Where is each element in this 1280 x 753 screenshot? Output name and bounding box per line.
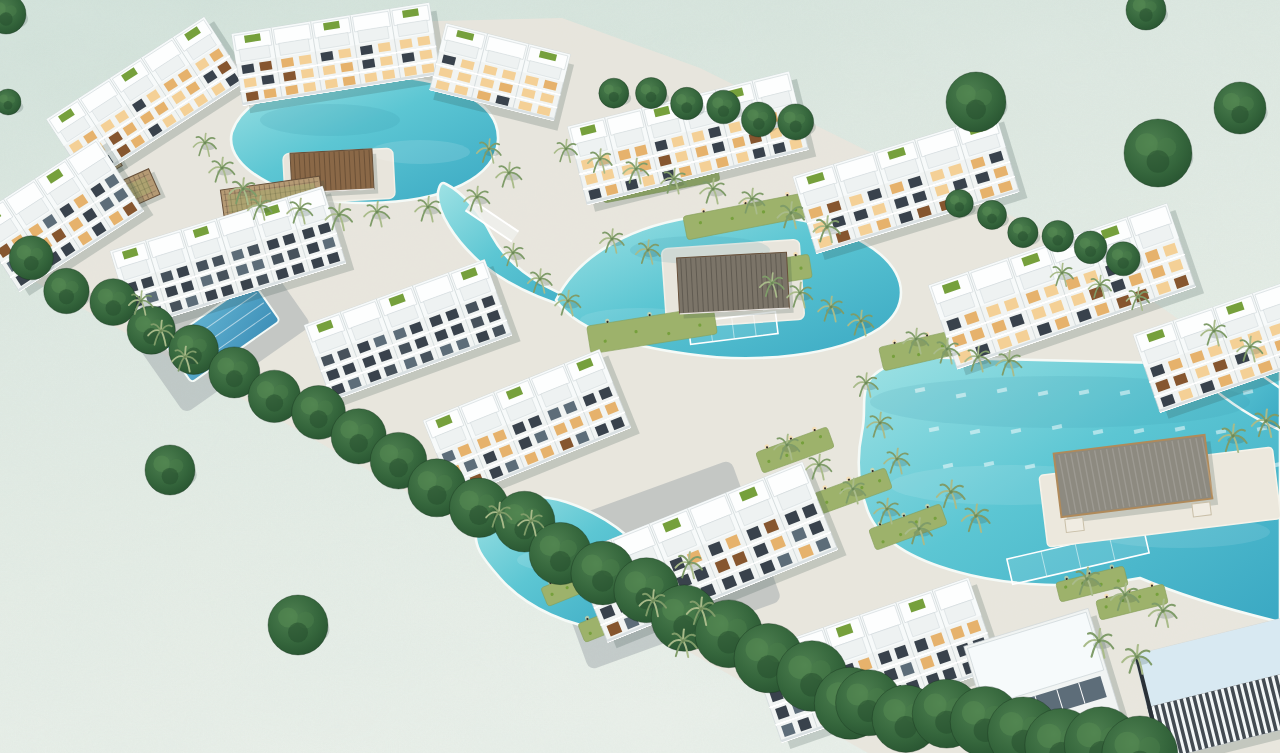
canopy-shade bbox=[288, 623, 308, 643]
canopy-shade bbox=[24, 256, 39, 271]
palm-crown bbox=[375, 210, 378, 213]
palm-crown bbox=[241, 187, 244, 190]
palm-crown bbox=[258, 204, 261, 207]
palm-crown bbox=[1061, 272, 1064, 275]
canopy-shade bbox=[592, 570, 613, 591]
palm-crown bbox=[864, 381, 867, 384]
canopy-shade bbox=[955, 202, 964, 211]
palm-crown bbox=[1248, 345, 1251, 348]
pavilion-lattice-post bbox=[1065, 517, 1084, 532]
palm-crown bbox=[672, 177, 675, 180]
palm-crown bbox=[750, 197, 753, 200]
canopy-shade bbox=[310, 410, 328, 428]
palm-crown bbox=[798, 291, 801, 294]
palm-crown bbox=[1097, 639, 1101, 643]
canopy-shade bbox=[389, 458, 408, 477]
palm-crown bbox=[565, 148, 568, 151]
palm-crown bbox=[895, 457, 898, 460]
canopy-shade bbox=[1085, 246, 1096, 257]
palm-crown bbox=[829, 305, 832, 308]
palm-crown bbox=[1137, 296, 1140, 299]
water-reflection bbox=[260, 104, 400, 136]
canopy-shade bbox=[718, 106, 729, 117]
palm-crown bbox=[1231, 434, 1235, 438]
palm-crown bbox=[598, 157, 601, 160]
canopy-shade bbox=[1139, 8, 1152, 21]
palm-crown bbox=[1123, 593, 1127, 597]
palm-crown bbox=[512, 252, 515, 255]
palm-crown bbox=[497, 511, 500, 514]
canopy-shade bbox=[987, 214, 997, 224]
canopy-shade bbox=[753, 118, 765, 130]
palm-crown bbox=[885, 507, 888, 510]
palm-crown bbox=[859, 319, 862, 322]
canopy-shade bbox=[790, 120, 802, 132]
resort-aerial-render: Aerial 3D architectural rendering at dus… bbox=[0, 0, 1280, 753]
canopy-shade bbox=[4, 101, 13, 110]
palm-crown bbox=[220, 166, 223, 169]
palm-crown bbox=[785, 443, 788, 446]
palm-crown bbox=[817, 463, 820, 466]
palm-crown bbox=[974, 514, 978, 518]
palm-crown bbox=[1264, 419, 1268, 423]
palm-crown bbox=[475, 195, 478, 198]
palm-crown bbox=[139, 299, 142, 302]
scene-layers bbox=[0, 0, 1280, 753]
palm-crown bbox=[851, 487, 854, 490]
palm-crown bbox=[651, 599, 654, 602]
canopy-shade bbox=[550, 551, 571, 572]
canopy-shade bbox=[427, 485, 446, 504]
canopy-shade bbox=[681, 102, 692, 113]
palm-crown bbox=[298, 207, 301, 210]
palm-crown bbox=[917, 527, 920, 530]
scene-canvas bbox=[0, 0, 1280, 753]
water-reflection bbox=[370, 140, 470, 164]
palm-crown bbox=[646, 248, 649, 251]
canopy-shade bbox=[1147, 150, 1170, 173]
palm-crown bbox=[789, 211, 792, 214]
canopy-shade bbox=[59, 289, 74, 304]
palm-crown bbox=[711, 187, 714, 190]
canopy-shade bbox=[966, 100, 986, 120]
palm-crown bbox=[699, 607, 703, 611]
canopy-shade bbox=[226, 370, 243, 387]
palm-crown bbox=[204, 142, 207, 145]
palm-crown bbox=[634, 167, 637, 170]
palm-crown bbox=[1085, 577, 1089, 581]
canopy-shade bbox=[350, 434, 368, 452]
canopy-shade bbox=[266, 394, 283, 411]
canopy-shade bbox=[1053, 235, 1064, 246]
palm-crown bbox=[681, 639, 685, 643]
palm-crown bbox=[529, 519, 532, 522]
palm-crown bbox=[487, 147, 490, 150]
palm-crown bbox=[1007, 359, 1010, 362]
canopy-shade bbox=[1118, 257, 1129, 268]
tree bbox=[1124, 119, 1193, 187]
palm-crown bbox=[1161, 609, 1165, 613]
palm-crown bbox=[159, 329, 162, 332]
palm-crown bbox=[976, 355, 979, 358]
palm-crown bbox=[949, 490, 953, 494]
pavilion-lattice-post bbox=[1192, 502, 1211, 517]
palm-crown bbox=[426, 205, 429, 208]
canopy-shade bbox=[105, 300, 121, 316]
canopy-shade bbox=[162, 468, 179, 485]
palm-crown bbox=[878, 421, 881, 424]
palm-crown bbox=[507, 171, 510, 174]
palm-crown bbox=[566, 299, 569, 302]
palm-crown bbox=[914, 337, 917, 340]
palm-crown bbox=[538, 277, 541, 280]
canopy-shade bbox=[1018, 231, 1028, 241]
canopy-shade bbox=[609, 92, 619, 102]
palm-crown bbox=[1099, 284, 1102, 287]
canopy-shade bbox=[469, 505, 489, 525]
canopy-shade bbox=[646, 92, 656, 102]
palm-crown bbox=[1212, 329, 1215, 332]
palm-crown bbox=[183, 355, 186, 358]
palm-crown bbox=[1135, 655, 1139, 659]
palm-crown bbox=[825, 225, 828, 228]
palm-crown bbox=[770, 281, 773, 284]
canopy-shade bbox=[1231, 106, 1248, 123]
palm-crown bbox=[337, 213, 340, 216]
palm-crown bbox=[945, 347, 948, 350]
palm-crown bbox=[610, 237, 613, 240]
palm-crown bbox=[687, 561, 690, 564]
